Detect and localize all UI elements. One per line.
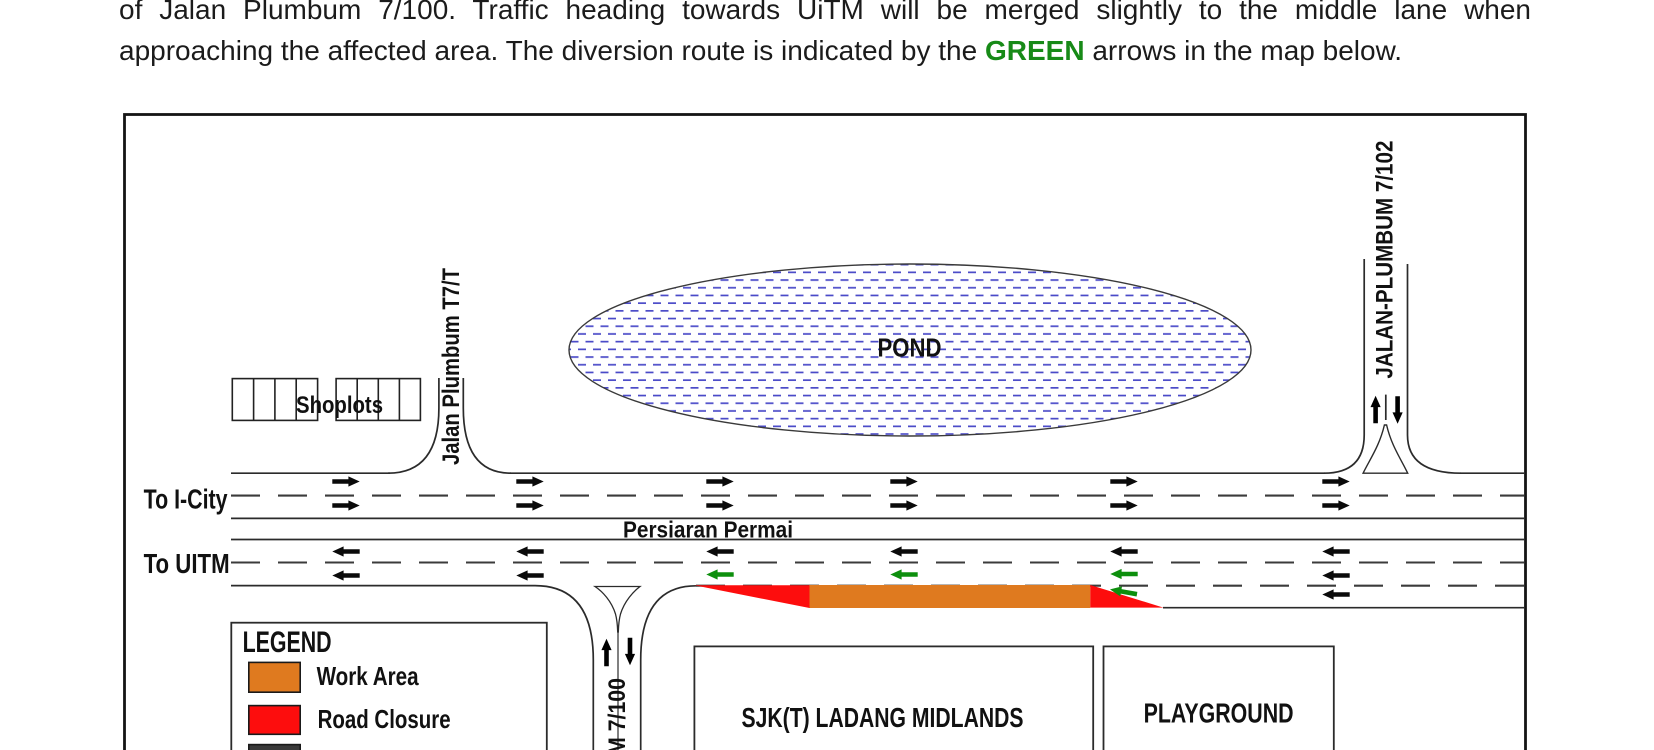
svg-text:Work Area: Work Area: [317, 661, 419, 691]
svg-text:JALAN PLUMBUM 7/100: JALAN PLUMBUM 7/100: [604, 678, 631, 750]
svg-text:Shoplots: Shoplots: [296, 392, 383, 419]
svg-text:SJK(T) LADANG MIDLANDS: SJK(T) LADANG MIDLANDS: [742, 702, 1024, 733]
svg-text:Road Closure: Road Closure: [318, 704, 451, 734]
svg-text:JALAN-PLUMBUM 7/102: JALAN-PLUMBUM 7/102: [1372, 141, 1399, 379]
svg-text:To I-City: To I-City: [144, 484, 228, 515]
svg-text:Jalan Plumbum T7/T: Jalan Plumbum T7/T: [438, 268, 465, 465]
svg-text:LEGEND: LEGEND: [243, 626, 332, 659]
svg-text:POND: POND: [878, 333, 942, 363]
svg-text:PLAYGROUND: PLAYGROUND: [1144, 698, 1294, 729]
svg-text:Persiaran Permai: Persiaran Permai: [623, 517, 793, 543]
svg-text:To UITM: To UITM: [144, 548, 230, 579]
